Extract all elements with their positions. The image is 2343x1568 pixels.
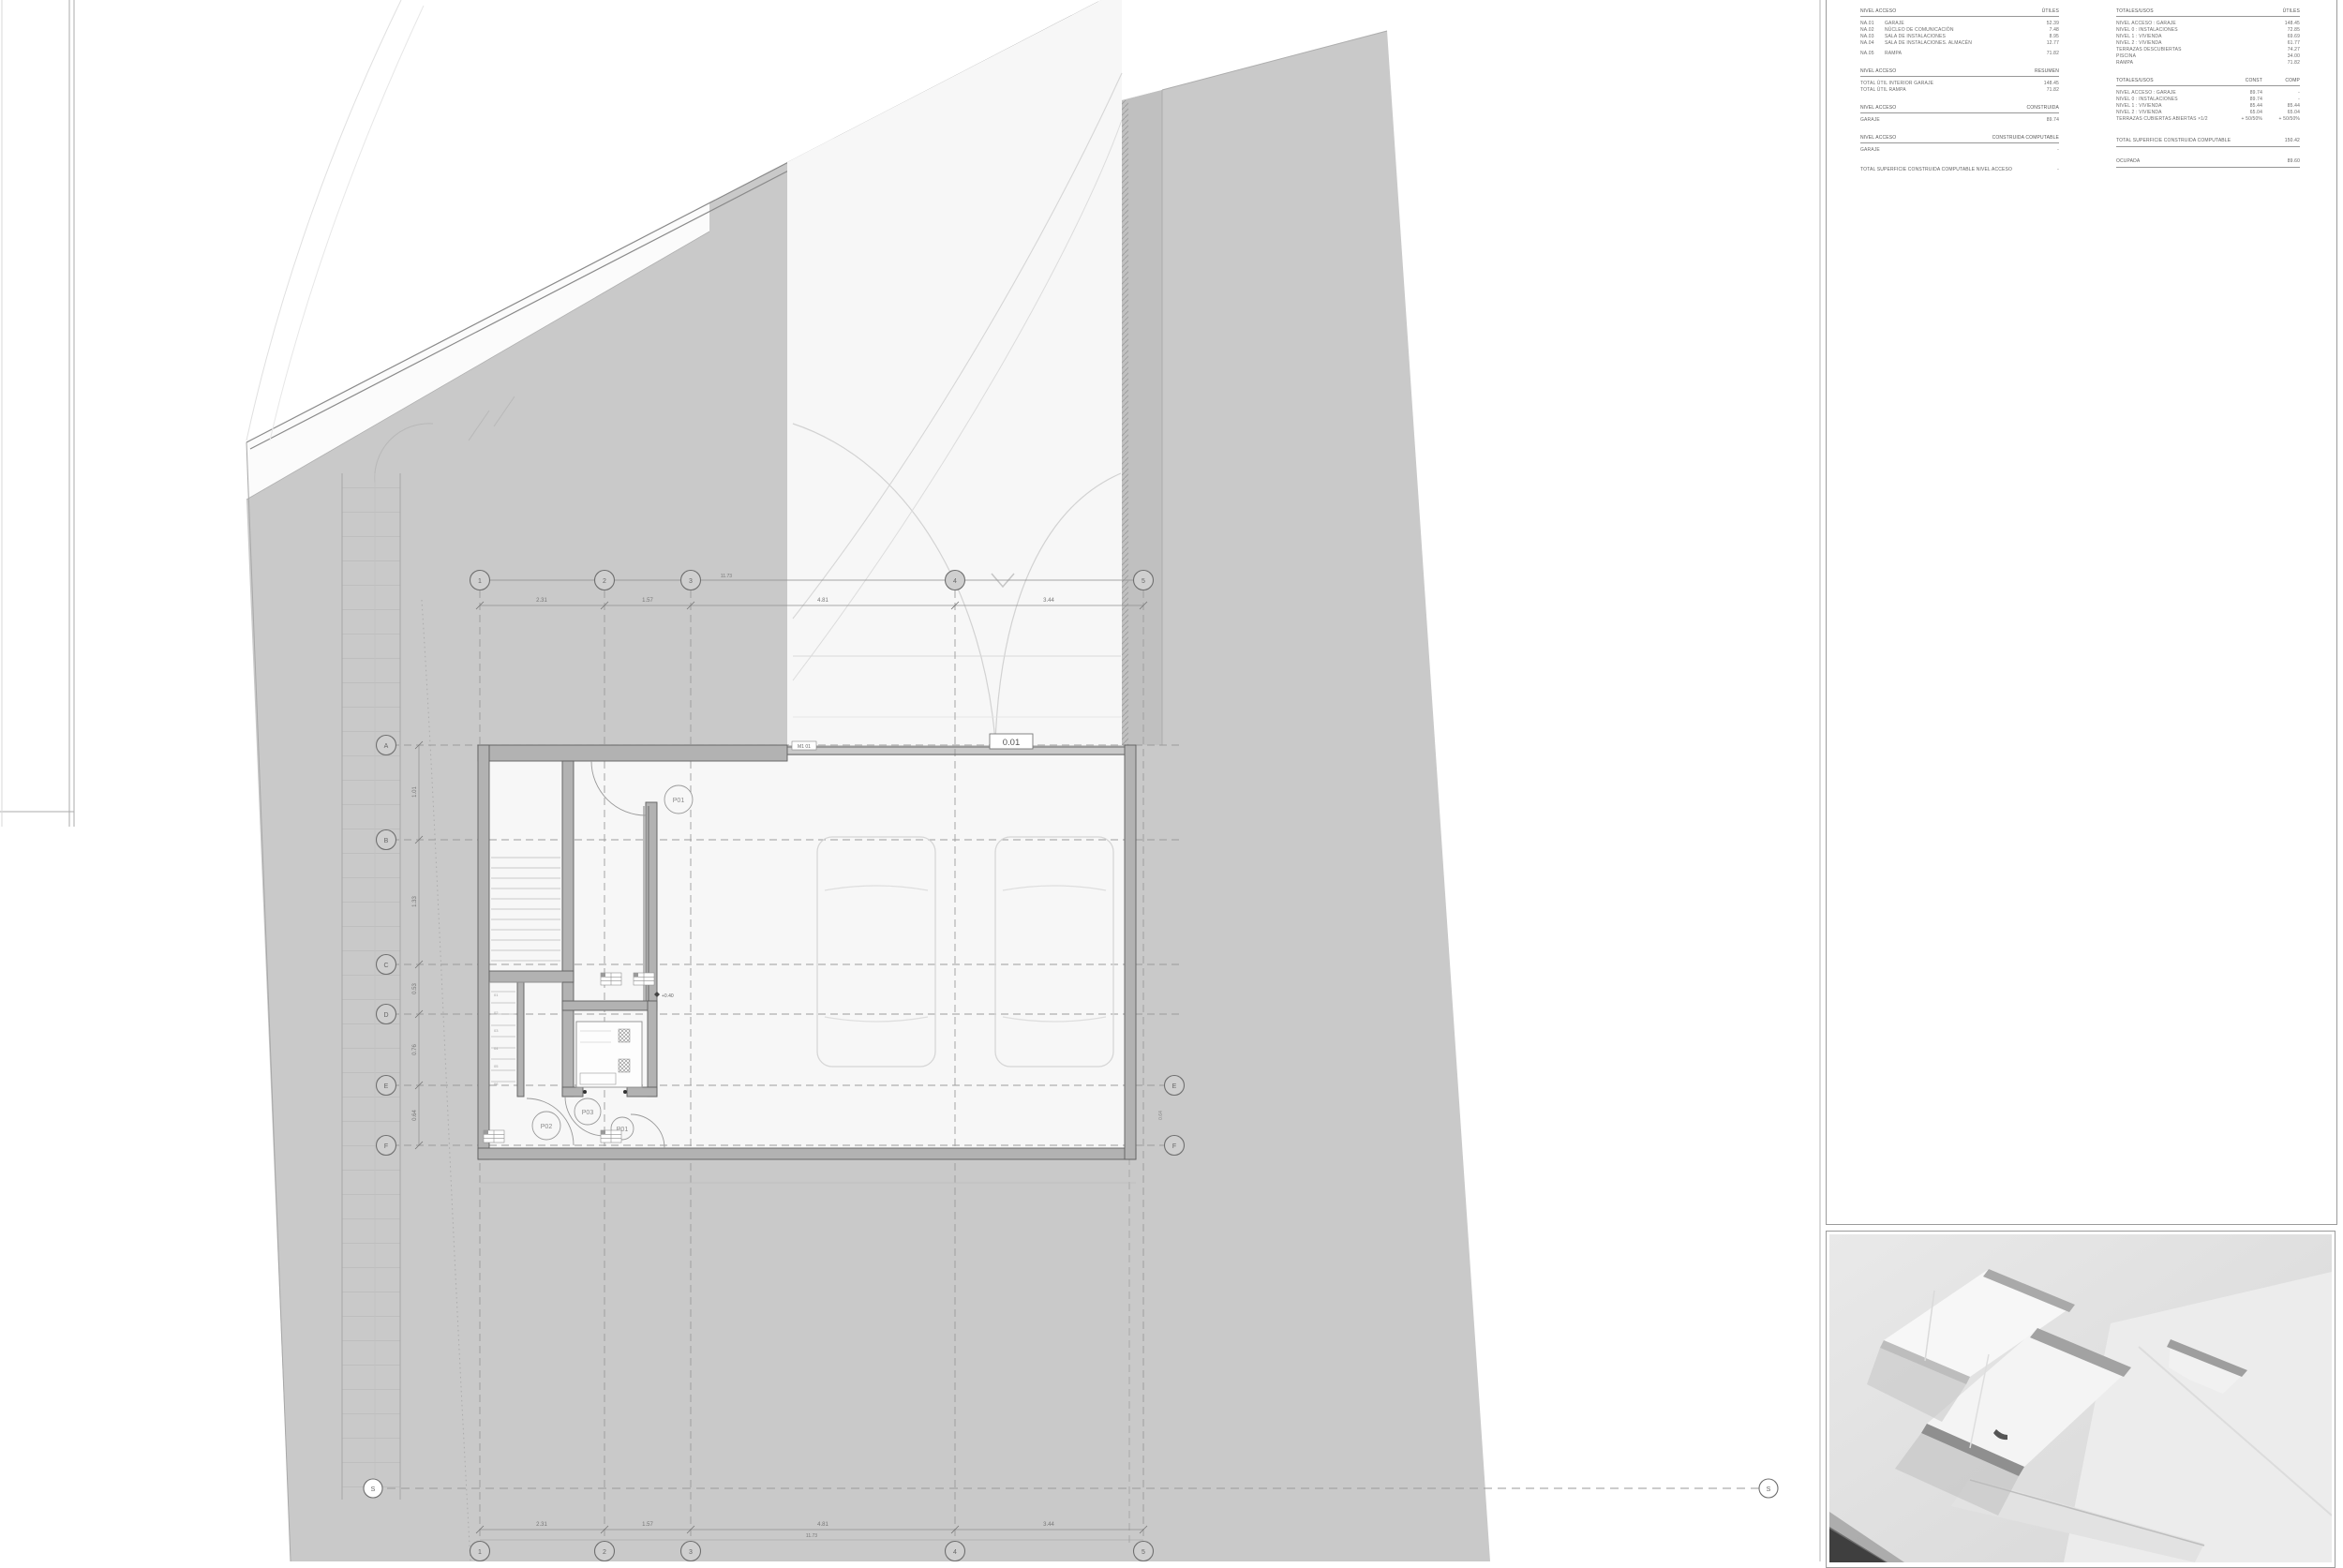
svg-text:E: E [384,1083,389,1090]
svg-text:D: D [383,1012,388,1019]
table-row: TOTAL ÚTIL RAMPA71.82 [1860,87,2059,94]
threshold-tag: M1 01 [798,744,811,750]
table-row: NIVEL 0 : INSTALACIONES89.74- [2116,97,2300,103]
dim-right: 0.64 [1158,1111,1164,1120]
svg-text:0.64: 0.64 [412,1110,418,1121]
table-row: NA.03SALA DE INSTALACIONES8.95 [1860,34,2059,40]
svg-text:4.81: 4.81 [817,598,828,604]
table-row: TERRAZAS CUBIERTAS ABIERTAS ×1/2+ 50/50%… [2116,116,2300,123]
table-row: RAMPA71.82 [2116,60,2300,67]
svg-text:01: 01 [494,993,499,997]
table-row: NA.02NÚCLEO DE COMUNICACIÓN7.48 [1860,27,2059,34]
svg-text:3.44: 3.44 [1043,598,1054,604]
door-tag-p03: P03 [582,1110,594,1116]
table-row: NA.05RAMPA71.82 [1860,51,2059,57]
svg-text:3: 3 [689,578,693,585]
section-header: NIVEL ACCESO ÚTILES [1860,8,2059,17]
right-panel: NIVEL ACCESO ÚTILES NA.01GARAJE52.39 NA.… [1820,0,2343,1561]
svg-text:3.44: 3.44 [1043,1522,1054,1528]
door-pivot-dot [623,1090,627,1094]
svg-text:4: 4 [953,578,957,585]
section-header: TOTALES/USOS CONST COMP [2116,78,2300,86]
table-row: NIVEL ACCESO : GARAJE89.74- [2116,90,2300,97]
svg-text:1: 1 [478,1549,482,1556]
table-row: PISCINA34.00 [2116,53,2300,60]
table-row: NIVEL 1 : VIVIENDA69.69 [2116,34,2300,40]
door-tag-p01: P01 [673,798,685,804]
svg-text:2: 2 [603,1549,606,1556]
table-row: NA.04SALA DE INSTALACIONES. ALMACÉN12.77 [1860,40,2059,47]
svg-text:1.57: 1.57 [642,1522,653,1528]
svg-text:2.31: 2.31 [536,598,547,604]
svg-text:A: A [384,743,389,750]
building-interior [489,755,1134,1154]
svg-text:2.31: 2.31 [536,1522,547,1528]
svg-text:03: 03 [494,1028,499,1033]
table-row: GARAJE- [1860,147,2059,154]
equipment-room [576,1022,642,1087]
svg-text:2: 2 [603,578,606,585]
svg-text:5: 5 [1142,1549,1145,1556]
table-row: NIVEL 2 : VIVIENDA61.77 [2116,40,2300,47]
section-title: NIVEL ACCESO [1860,8,1896,15]
svg-text:S: S [371,1486,376,1493]
svg-text:0.76: 0.76 [412,1044,418,1055]
section-header: NIVEL ACCESO RESUMEN [1860,68,2059,77]
table-total-row: TOTAL SUPERFICIE CONSTRUIDA COMPUTABLE 1… [2116,138,2300,147]
svg-text:S: S [1767,1486,1771,1493]
table-row: GARAJE89.74 [1860,117,2059,124]
table-row: NIVEL 0 : INSTALACIONES72.85 [2116,27,2300,34]
room-tag: 0.01 [1003,738,1021,748]
svg-text:E: E [1172,1083,1177,1090]
svg-text:F: F [1172,1143,1176,1150]
table-row: NIVEL 1 : VIVIENDA85.4485.44 [2116,103,2300,110]
svg-text:02: 02 [494,1010,499,1015]
section-col: ÚTILES [2042,8,2059,15]
svg-text:0.53: 0.53 [412,983,418,994]
svg-text:4.81: 4.81 [817,1522,828,1528]
section-header: TOTALES/USOS ÚTILES [2116,8,2300,17]
table-totales-usos: TOTALES/USOS ÚTILES NIVEL ACCESO : GARAJ… [2116,7,2300,168]
svg-text:C: C [383,963,388,969]
table-row: TOTAL ÚTIL INTERIOR GARAJE148.45 [1860,81,2059,87]
table-row: NA.01GARAJE52.39 [1860,21,2059,27]
door-tag-p02: P02 [541,1124,553,1130]
sheet-edge-left [0,0,74,827]
svg-text:05: 05 [494,1064,499,1068]
svg-text:1.57: 1.57 [642,598,653,604]
svg-text:1: 1 [478,578,482,585]
svg-text:F: F [384,1143,388,1150]
svg-text:1.33: 1.33 [412,896,418,907]
overall-dim-top: 11.73 [721,574,732,579]
svg-text:5: 5 [1142,578,1145,585]
table-row: NIVEL 2 : VIVIENDA65.0465.04 [2116,110,2300,116]
level-marker: +0.40 [662,993,674,999]
overall-dim-bottom: 11.73 [806,1533,817,1539]
boundary-steps [342,473,400,1500]
table-nivel-acceso: NIVEL ACCESO ÚTILES NA.01GARAJE52.39 NA.… [1860,7,2059,175]
table-ocupada-row: OCUPADA 89.60 [2116,158,2300,168]
model-photo-frame [1826,1231,2336,1568]
svg-text:3: 3 [689,1549,693,1556]
ramp [787,0,1122,745]
table-row: TERRAZAS DESCUBIERTAS74.27 [2116,47,2300,53]
area-tables-box: NIVEL ACCESO ÚTILES NA.01GARAJE52.39 NA.… [1826,0,2337,1225]
svg-text:4: 4 [953,1549,957,1556]
svg-text:B: B [384,838,389,844]
section-header: NIVEL ACCESO CONSTRUIDA [1860,105,2059,113]
svg-text:04: 04 [494,1046,499,1051]
svg-text:1.01: 1.01 [412,786,418,798]
svg-text:06: 06 [494,1082,499,1086]
table-footer-total: TOTAL SUPERFICIE CONSTRUIDA COMPUTABLE N… [1860,167,2059,175]
model-photo [1829,1234,2332,1562]
door-pivot-dot [583,1090,587,1094]
table-row: NIVEL ACCESO : GARAJE148.45 [2116,21,2300,27]
section-header: NIVEL ACCESO CONSTRUIDA COMPUTABLE [1860,135,2059,143]
